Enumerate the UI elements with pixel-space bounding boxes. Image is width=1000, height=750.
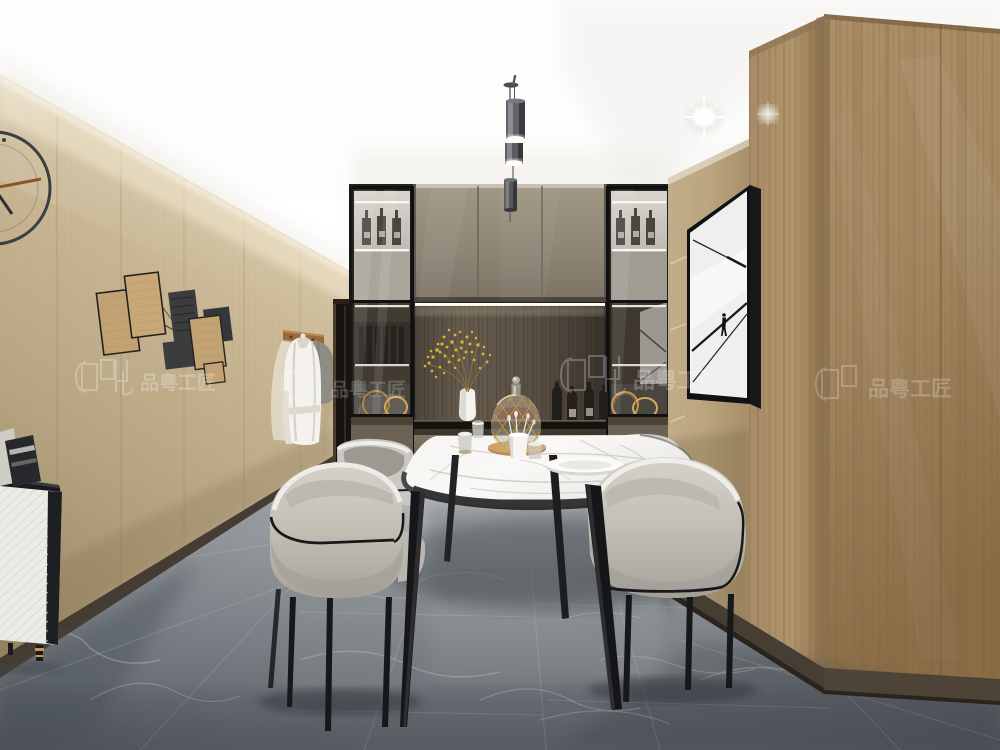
- svg-text:品粤工匠: 品粤工匠: [140, 371, 216, 394]
- svg-text:品粤工匠: 品粤工匠: [330, 378, 406, 401]
- svg-text:品粤工匠: 品粤工匠: [868, 377, 952, 401]
- svg-text:品粤工匠: 品粤工匠: [633, 368, 721, 393]
